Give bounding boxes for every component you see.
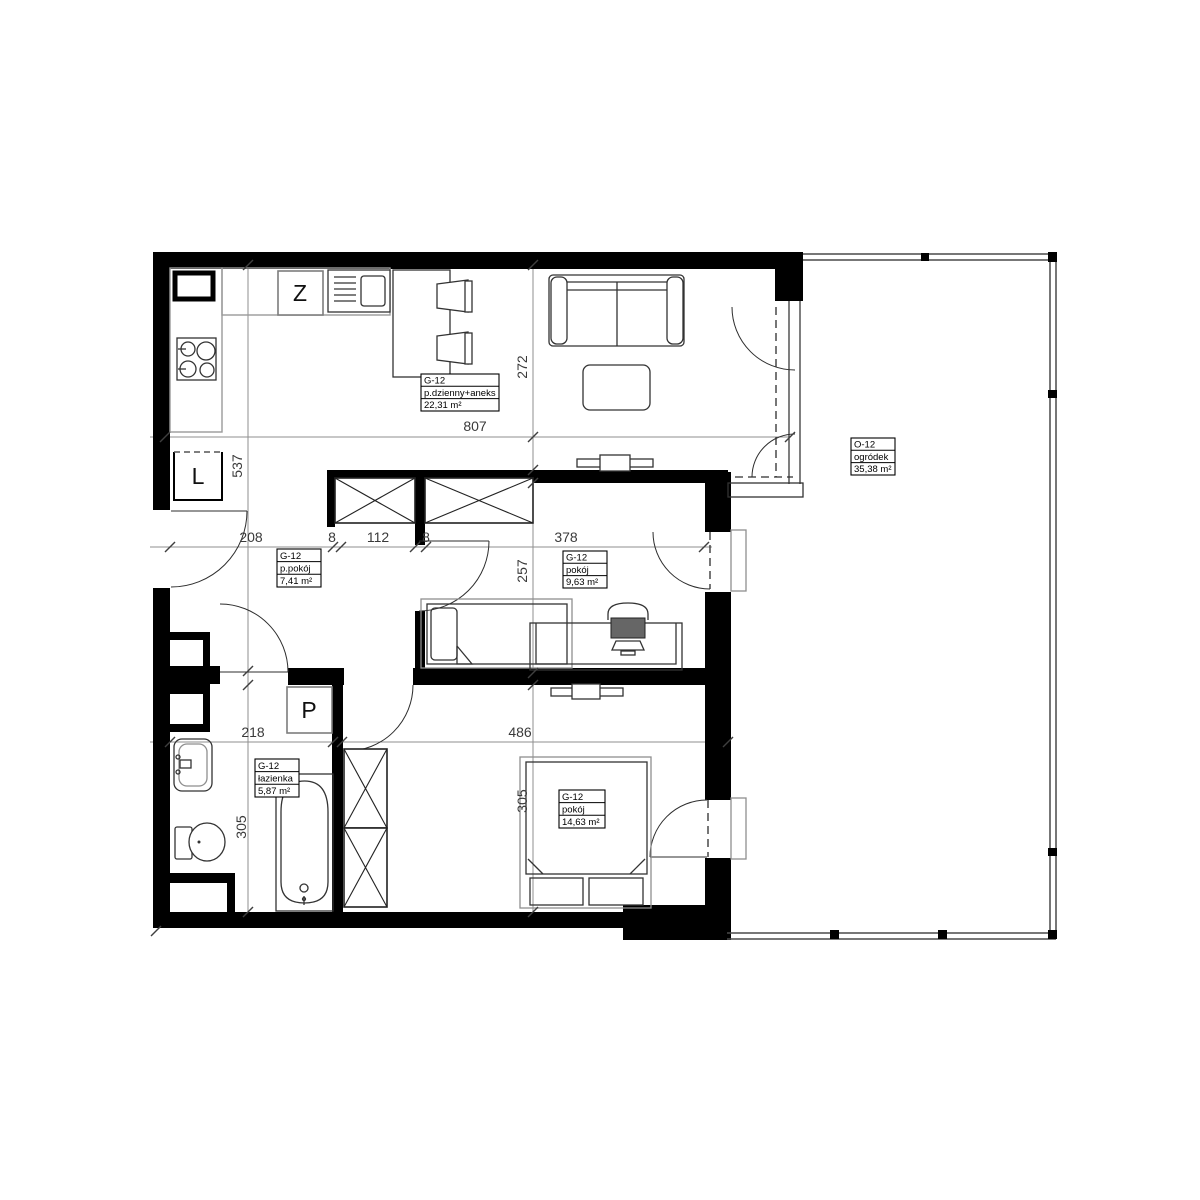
walls — [153, 252, 803, 940]
svg-text:G-12: G-12 — [280, 551, 301, 562]
room-label-room1: G-12 pokój 14,63 m² — [559, 790, 605, 828]
svg-text:7,41 m²: 7,41 m² — [280, 576, 312, 587]
dim-bath-depth: 305 — [233, 815, 249, 839]
kitchen-shaft — [175, 273, 213, 299]
threshold-living — [728, 483, 803, 497]
dim-left-height: 537 — [229, 454, 245, 478]
dim-wardrobe-width: 112 — [367, 529, 390, 545]
kitchen: Z L — [170, 268, 390, 500]
garden-fence — [727, 252, 1057, 939]
built-in-wardrobe — [335, 478, 415, 523]
dim-bath-width: 218 — [241, 724, 265, 740]
threshold-room2 — [731, 530, 746, 591]
chair — [437, 280, 472, 312]
glass-wall — [728, 301, 803, 497]
built-in-wardrobe — [425, 478, 533, 523]
room-label-hall: G-12 p.pokój 7,41 m² — [277, 549, 321, 587]
room1-door — [347, 685, 413, 751]
room-label-room2: G-12 pokój 9,63 m² — [563, 551, 607, 588]
dining-set — [393, 270, 472, 377]
entrance-door — [171, 511, 247, 587]
room1-garden-door — [650, 798, 746, 859]
bathroom-door — [220, 604, 288, 672]
dishwasher-letter: Z — [293, 280, 307, 306]
hall-wardrobes — [335, 478, 533, 523]
single-bed — [421, 599, 572, 668]
dim-room2-width: 378 — [554, 529, 578, 545]
desk-chair — [608, 603, 648, 655]
floor-plan-drawing: Z L — [0, 0, 1200, 1200]
svg-text:14,63 m²: 14,63 m² — [562, 817, 600, 828]
room-label-garden: O-12 ogródek 35,38 m² — [851, 438, 895, 475]
svg-text:5,87 m²: 5,87 m² — [258, 786, 290, 797]
room-label-living: G-12 p.dzienny+aneks 22,31 m² — [421, 374, 499, 411]
radiator-living — [577, 455, 653, 471]
tall-cabinet — [344, 749, 387, 907]
dim-room2-depth: 257 — [514, 559, 530, 583]
svg-text:G-12: G-12 — [258, 761, 279, 772]
svg-text:G-12: G-12 — [566, 553, 587, 564]
dim-living-depth: 272 — [514, 355, 530, 379]
desk — [530, 623, 682, 670]
svg-text:łazienka: łazienka — [258, 773, 294, 784]
dim-wall-b: 8 — [422, 529, 430, 545]
svg-text:G-12: G-12 — [562, 792, 583, 803]
kitchen-sink — [328, 270, 390, 312]
sofa — [549, 275, 684, 346]
room2-garden-door — [653, 530, 746, 591]
radiator-room1 — [551, 684, 623, 699]
double-bed — [520, 757, 651, 908]
floor-plan-page: Z L — [0, 0, 1200, 1200]
dim-wall-a: 8 — [328, 529, 336, 545]
svg-text:9,63 m²: 9,63 m² — [566, 577, 598, 588]
room2-door — [419, 541, 489, 611]
svg-text:p.pokój: p.pokój — [280, 563, 311, 574]
threshold-room1 — [731, 798, 746, 859]
dim-hall-width: 208 — [239, 529, 263, 545]
washer: P — [287, 687, 332, 733]
fridge-letter: L — [192, 463, 205, 489]
living-room — [549, 275, 684, 471]
washbasin — [174, 739, 212, 791]
svg-text:p.dzienny+aneks: p.dzienny+aneks — [424, 388, 496, 399]
balcony-door-swing-upper — [732, 307, 795, 370]
svg-text:ogródek: ogródek — [854, 452, 889, 463]
room-label-bath: G-12 łazienka 5,87 m² — [255, 759, 299, 797]
toilet — [175, 823, 225, 861]
fridge: L — [174, 452, 222, 500]
svg-text:pokój: pokój — [566, 565, 589, 576]
dim-room1-depth: 305 — [514, 789, 530, 813]
svg-text:O-12: O-12 — [854, 440, 875, 451]
dim-room1-width: 486 — [508, 724, 532, 740]
coffee-table — [583, 365, 650, 410]
cooktop — [177, 338, 216, 380]
svg-text:pokój: pokój — [562, 804, 585, 815]
svg-text:22,31 m²: 22,31 m² — [424, 400, 462, 411]
washer-letter: P — [301, 697, 316, 723]
chair — [437, 332, 472, 364]
dim-living-width: 807 — [463, 418, 487, 434]
svg-text:35,38 m²: 35,38 m² — [854, 464, 892, 475]
dishwasher: Z — [278, 271, 323, 315]
svg-text:G-12: G-12 — [424, 376, 445, 387]
